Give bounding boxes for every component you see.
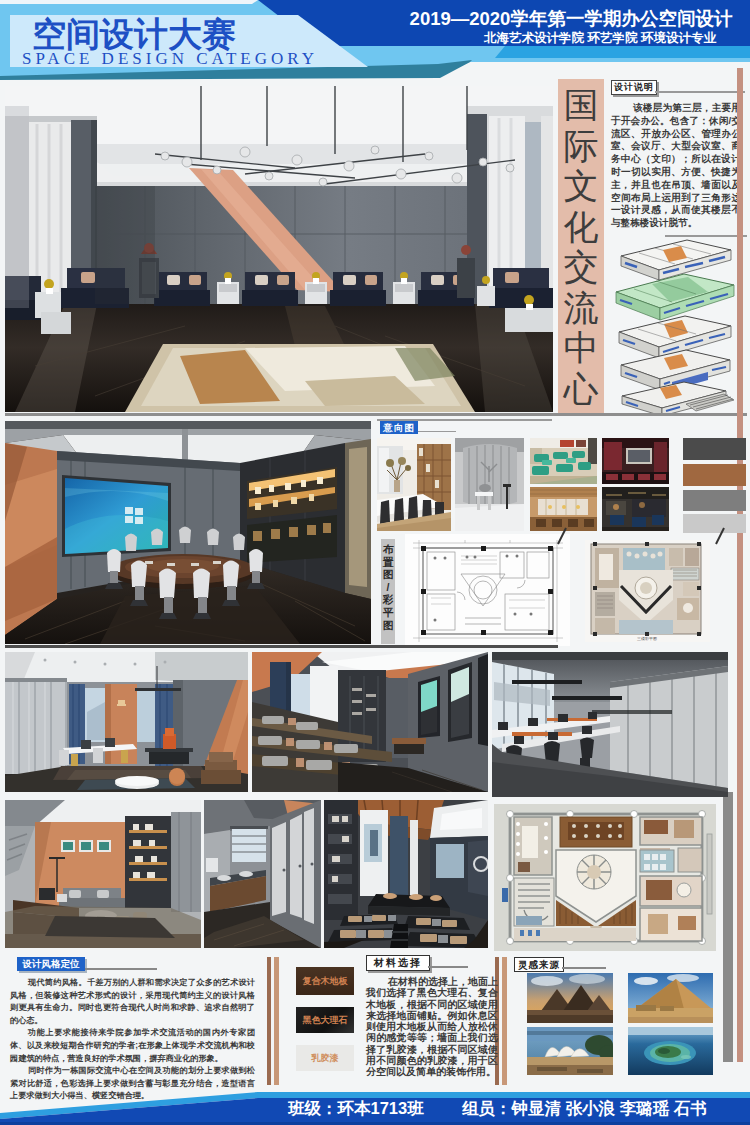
svg-text:三楼彩平图: 三楼彩平图 xyxy=(637,636,657,641)
svg-text:SPACE DESIGN CATEGORY: SPACE DESIGN CATEGORY xyxy=(22,49,318,68)
svg-text:空间设计大赛: 空间设计大赛 xyxy=(32,15,236,53)
svg-text:组员：钟显清 张小浪 李璐瑶 石书: 组员：钟显清 张小浪 李璐瑶 石书 xyxy=(461,1099,707,1118)
svg-text:2019—2020学年第一学期办公空间设计: 2019—2020学年第一学期办公空间设计 xyxy=(410,8,733,29)
svg-text:北海艺术设计学院 环艺学院 环境设计专业: 北海艺术设计学院 环艺学院 环境设计专业 xyxy=(483,30,716,45)
svg-text:班级：环本1713班: 班级：环本1713班 xyxy=(287,1099,424,1117)
